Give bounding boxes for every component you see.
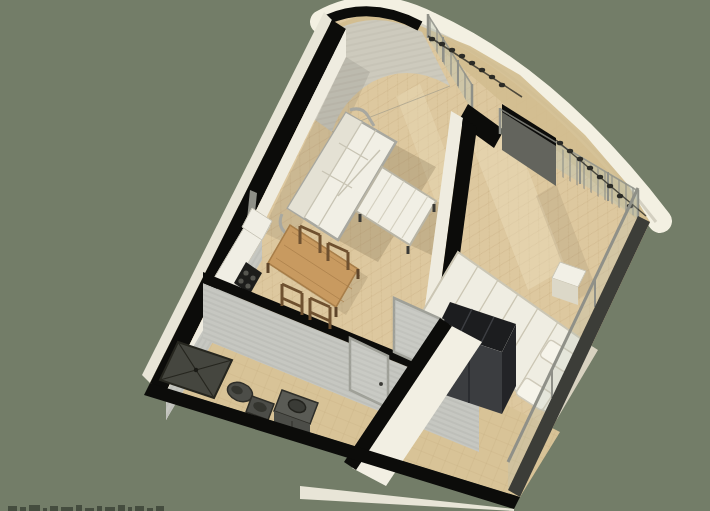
- watermark-dash: [50, 506, 58, 511]
- watermark-dash: [61, 507, 73, 511]
- floor-plan-svg: [0, 0, 710, 511]
- watermark-dash: [20, 507, 26, 511]
- watermark-dash: [76, 505, 82, 511]
- screenshot-stage: [0, 0, 710, 511]
- watermark-dash: [135, 506, 144, 511]
- watermark-dash: [8, 506, 17, 511]
- cutoff-watermark: [8, 505, 164, 511]
- watermark-dash: [156, 506, 164, 511]
- watermark-dash: [97, 506, 102, 511]
- watermark-dash: [128, 507, 132, 511]
- watermark-dash: [105, 507, 115, 511]
- watermark-dash: [118, 505, 125, 511]
- watermark-dash: [29, 505, 40, 511]
